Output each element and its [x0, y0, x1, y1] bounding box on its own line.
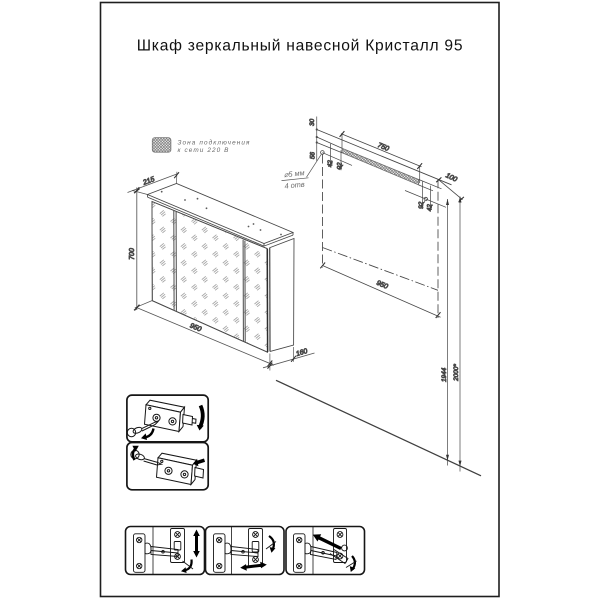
- svg-text:2000*: 2000*: [453, 364, 460, 382]
- svg-text:56: 56: [310, 152, 317, 160]
- svg-text:Шкаф зеркальный навесной Крист: Шкаф зеркальный навесной Кристалл 95: [137, 38, 464, 55]
- svg-text:к сети 220 В: к сети 220 В: [178, 147, 230, 154]
- svg-text:700: 700: [129, 248, 136, 260]
- svg-text:92: 92: [418, 201, 425, 209]
- svg-text:42: 42: [327, 160, 334, 168]
- svg-text:92: 92: [337, 162, 344, 170]
- svg-text:1944: 1944: [441, 367, 448, 382]
- svg-text:42: 42: [426, 204, 433, 212]
- svg-text:30: 30: [309, 118, 316, 126]
- svg-text:Зона подключения: Зона подключения: [178, 139, 251, 147]
